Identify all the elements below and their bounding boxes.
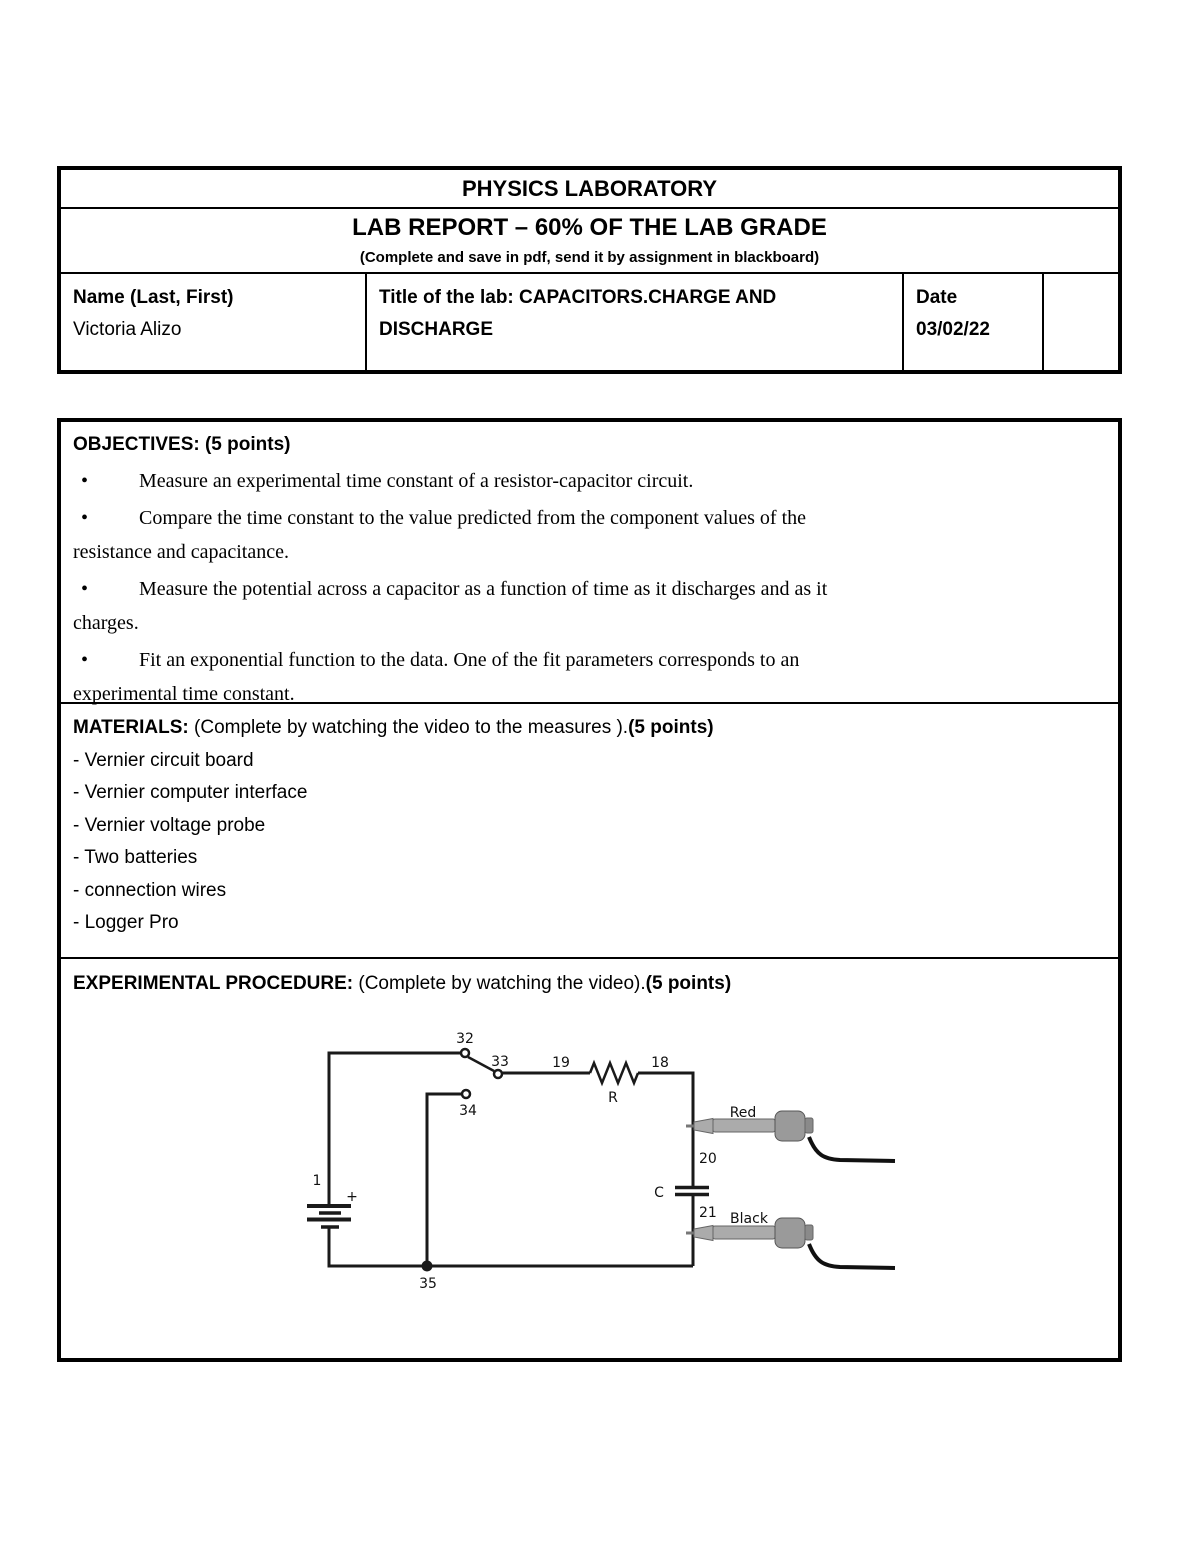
report-subtitle-block: LAB REPORT – 60% OF THE LAB GRADE (Compl… bbox=[61, 207, 1118, 272]
label-red-probe: Red bbox=[730, 1105, 757, 1121]
label-32: 32 bbox=[456, 1031, 474, 1047]
date-cell: Date 03/02/22 bbox=[902, 274, 1042, 370]
black-probe-tip bbox=[694, 1226, 713, 1241]
label-20: 20 bbox=[699, 1151, 717, 1167]
procedure-section: EXPERIMENTAL PROCEDURE: (Complete by wat… bbox=[61, 957, 1118, 1358]
header-info-row: Name (Last, First) Victoria Alizo Title … bbox=[61, 272, 1118, 370]
label-resistor: R bbox=[608, 1090, 618, 1106]
date-value: 03/02/22 bbox=[916, 314, 1030, 346]
main-table: OBJECTIVES: (5 points) •Measure an exper… bbox=[57, 418, 1122, 1362]
rc-circuit-diagram: 32 33 34 35 19 18 R 1 + C 20 21 Red Blac… bbox=[300, 1025, 900, 1305]
header-table: PHYSICS LABORATORY LAB REPORT – 60% OF T… bbox=[57, 166, 1122, 374]
bullet-icon: • bbox=[73, 572, 139, 607]
bottom-wire bbox=[329, 1227, 693, 1266]
black-probe-stub bbox=[805, 1225, 813, 1240]
right-rail-top bbox=[638, 1073, 693, 1188]
junction-35-dot bbox=[422, 1261, 433, 1272]
black-probe-connector bbox=[775, 1218, 805, 1248]
document-title: PHYSICS LABORATORY bbox=[61, 170, 1118, 207]
bullet-icon: • bbox=[73, 464, 139, 499]
black-probe-barrel bbox=[713, 1226, 775, 1239]
red-probe-connector bbox=[775, 1111, 805, 1141]
terminal-34 bbox=[462, 1090, 470, 1098]
red-probe-cable bbox=[809, 1137, 895, 1161]
objectives-list: •Measure an experimental time constant o… bbox=[73, 464, 1106, 712]
report-subtitle-note: (Complete and save in pdf, send it by as… bbox=[61, 245, 1118, 270]
terminal-33 bbox=[494, 1070, 502, 1078]
objectives-section: OBJECTIVES: (5 points) •Measure an exper… bbox=[61, 422, 1118, 702]
material-item: - Vernier circuit board bbox=[73, 745, 1106, 777]
label-black-probe: Black bbox=[730, 1211, 769, 1227]
red-probe-tip bbox=[694, 1119, 713, 1134]
terminal-32 bbox=[461, 1049, 469, 1057]
lab-report-page: PHYSICS LABORATORY LAB REPORT – 60% OF T… bbox=[0, 0, 1200, 1553]
label-34: 34 bbox=[459, 1103, 477, 1119]
objectives-heading: OBJECTIVES: (5 points) bbox=[73, 430, 1106, 460]
lab-title-cell: Title of the lab: CAPACITORS.CHARGE AND … bbox=[365, 274, 902, 370]
material-item: - Vernier voltage probe bbox=[73, 810, 1106, 842]
name-cell: Name (Last, First) Victoria Alizo bbox=[61, 274, 365, 370]
material-item: - Two batteries bbox=[73, 842, 1106, 874]
materials-list: - Vernier circuit board - Vernier comput… bbox=[73, 745, 1106, 939]
label-18: 18 bbox=[651, 1055, 669, 1071]
label-capacitor: C bbox=[654, 1185, 664, 1201]
materials-section: MATERIALS: (Complete by watching the vid… bbox=[61, 702, 1118, 957]
material-item: - connection wires bbox=[73, 875, 1106, 907]
bullet-icon: • bbox=[73, 643, 139, 678]
battery-plus-sign: + bbox=[346, 1189, 358, 1205]
label-21: 21 bbox=[699, 1205, 717, 1221]
name-label: Name (Last, First) bbox=[73, 282, 353, 314]
date-label: Date bbox=[916, 282, 1030, 314]
material-item: - Vernier computer interface bbox=[73, 777, 1106, 809]
materials-heading: MATERIALS: (Complete by watching the vid… bbox=[73, 713, 1106, 743]
bullet-icon: • bbox=[73, 501, 139, 536]
label-33: 33 bbox=[491, 1054, 509, 1070]
label-battery: 1 bbox=[313, 1173, 322, 1189]
empty-cell bbox=[1042, 274, 1118, 370]
resistor-zigzag bbox=[590, 1063, 638, 1083]
red-probe-stub bbox=[805, 1118, 813, 1133]
objective-item: •Measure an experimental time constant o… bbox=[73, 464, 1106, 499]
procedure-heading: EXPERIMENTAL PROCEDURE: (Complete by wat… bbox=[73, 969, 1106, 999]
objective-item: •Measure the potential across a capacito… bbox=[73, 572, 1106, 641]
name-value: Victoria Alizo bbox=[73, 314, 353, 346]
report-subtitle: LAB REPORT – 60% OF THE LAB GRADE bbox=[61, 211, 1118, 245]
discharge-wire bbox=[427, 1094, 461, 1266]
battery-top-wire bbox=[329, 1053, 461, 1206]
label-35: 35 bbox=[419, 1276, 437, 1292]
label-19: 19 bbox=[552, 1055, 570, 1071]
black-probe-cable bbox=[809, 1244, 895, 1268]
material-item: - Logger Pro bbox=[73, 907, 1106, 939]
objective-item: •Compare the time constant to the value … bbox=[73, 501, 1106, 570]
